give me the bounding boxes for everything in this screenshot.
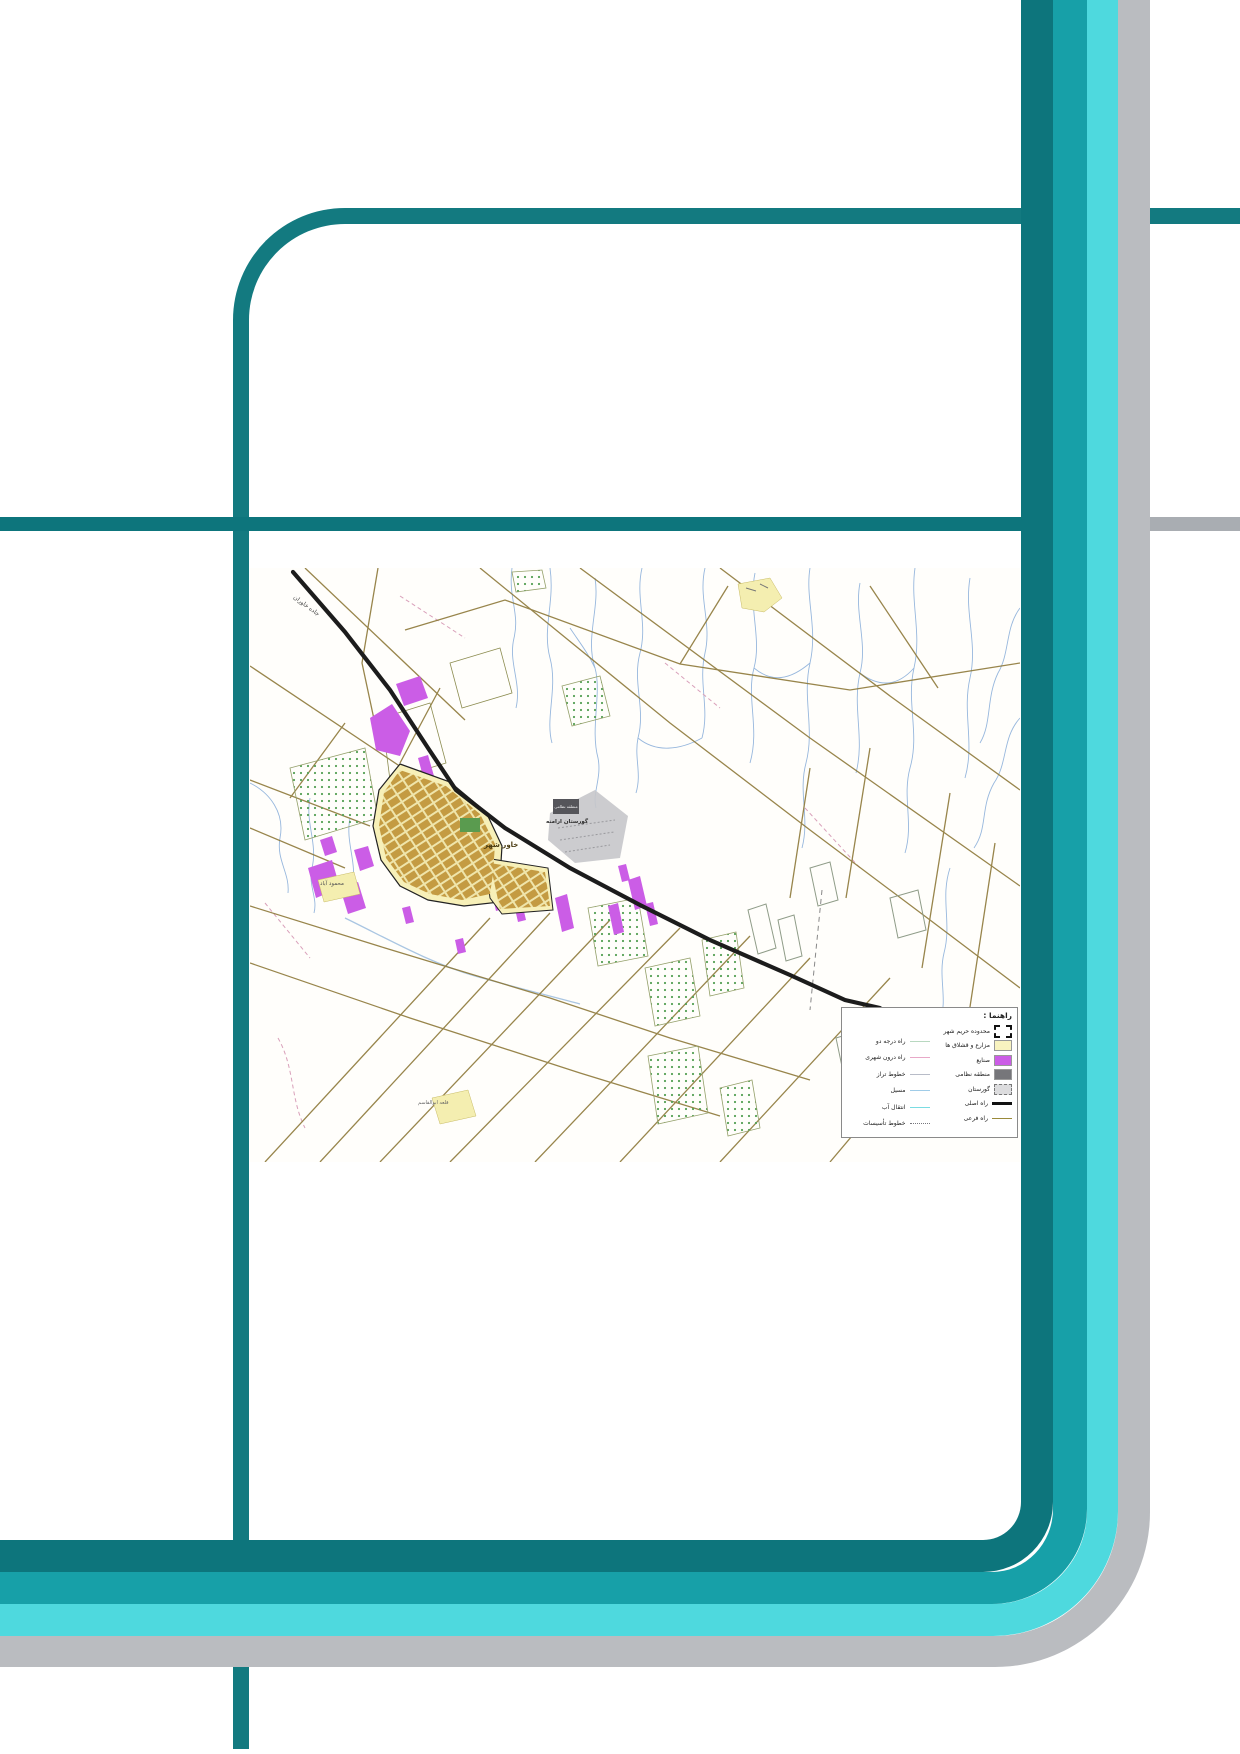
decor-rule-gray — [1150, 517, 1240, 531]
map-label-city: خاور شهر — [484, 841, 518, 849]
decor-frame-bottom-stub — [233, 1667, 249, 1749]
legend-item: مسیل — [847, 1083, 930, 1100]
industry-swatch-icon — [994, 1055, 1012, 1066]
legend-column-lines: راه درجه دو راه درون شهری خطوط تراز مسیل — [847, 1024, 930, 1132]
legend-item: خطوط تأسیسات — [847, 1116, 930, 1133]
main-road-line-icon — [992, 1102, 1012, 1105]
streambed-line-icon — [910, 1090, 930, 1091]
map-legend: راهنما : محدوده حریم شهر مزارع و قشلاق ه… — [841, 1007, 1018, 1138]
decor-frame-right-segment — [1150, 208, 1240, 224]
utilities-line-icon — [910, 1123, 930, 1124]
legend-header: راهنما : — [847, 1011, 1012, 1024]
legend-item: راه درون شهری — [847, 1050, 930, 1067]
legend-item: صنایع — [930, 1053, 1013, 1068]
grade2-road-line-icon — [910, 1041, 930, 1042]
legend-column-areas: محدوده حریم شهر مزارع و قشلاق ها صنایع م… — [930, 1024, 1013, 1132]
map-figure: جاده خاوران منطقه نظامی گورستان ارامنه خ… — [250, 568, 1020, 1162]
legend-item: راه فرعی — [930, 1111, 1013, 1126]
farms-swatch-icon — [994, 1040, 1012, 1051]
legend-item: منطقه نظامی — [930, 1068, 1013, 1083]
legend-item: خطوط تراز — [847, 1066, 930, 1083]
cemetery-swatch-icon — [994, 1084, 1012, 1095]
document-page: جاده خاوران منطقه نظامی گورستان ارامنه خ… — [0, 0, 1240, 1754]
legend-item: محدوده حریم شهر — [930, 1024, 1013, 1039]
legend-item: راه اصلی — [930, 1097, 1013, 1112]
decor-rule-teal — [0, 517, 1021, 531]
map-label-cemetery: گورستان ارامنه — [546, 819, 588, 825]
map-label-military: منطقه نظامی — [553, 799, 579, 814]
secondary-road-line-icon — [992, 1118, 1012, 1119]
legend-item: مزارع و قشلاق ها — [930, 1039, 1013, 1054]
map-label-village-southwest: محمود آباد — [320, 881, 344, 887]
legend-item: گورستان — [930, 1082, 1013, 1097]
legend-item: راه درجه دو — [847, 1033, 930, 1050]
water-transfer-line-icon — [910, 1107, 930, 1108]
contour-line-icon — [910, 1074, 930, 1075]
urban-road-line-icon — [910, 1057, 930, 1058]
map-label-village-south: قلعه ابوالقاسم — [418, 1100, 449, 1106]
boundary-dashed-icon — [994, 1025, 1012, 1038]
legend-item: انتقال آب — [847, 1099, 930, 1116]
military-swatch-icon — [994, 1069, 1012, 1080]
